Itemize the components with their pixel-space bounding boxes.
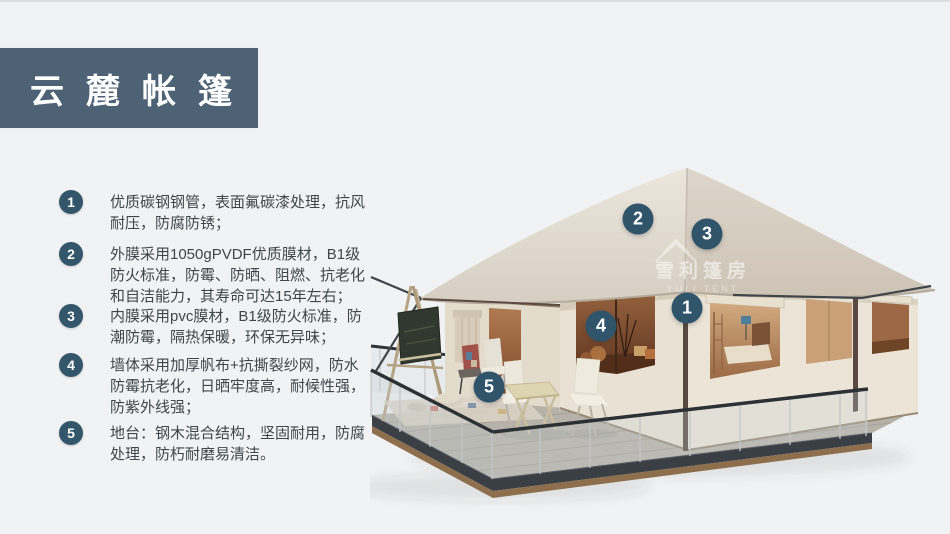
callout-marker-3: 3 — [692, 219, 723, 250]
side-window-far — [869, 294, 912, 354]
callout-marker-5: 5 — [474, 372, 505, 403]
slide: 云麓帐篷 1 优质碳钢钢管，表面氟碳漆处理，抗风耐压，防腐防锈； 2 外膜采用1… — [0, 0, 950, 534]
feature-number-badge: 4 — [59, 353, 83, 377]
title-banner: 云麓帐篷 — [0, 46, 260, 130]
feature-text: 内膜采用pvc膜材，B1级防火标准，防潮防霉，隔热保暖，环保无异味； — [110, 306, 368, 348]
feature-text: 外膜采用1050gPVDF优质膜材，B1级防火标准，防霉、防晒、阻燃、抗老化和自… — [110, 244, 368, 307]
callout-marker-1: 1 — [672, 293, 703, 324]
callout-marker-2: 2 — [623, 204, 654, 235]
tent-illustration: 雪利篷房 YULI TENT 1 2 3 4 5 — [370, 157, 950, 517]
feature-text: 优质碳钢钢管，表面氟碳漆处理，抗风耐压，防腐防锈； — [110, 192, 368, 234]
feature-number-badge: 1 — [59, 190, 83, 214]
tent-render — [370, 157, 950, 517]
feature-text: 墙体采用加厚帆布+抗撕裂纱网，防水防霉抗老化，日晒牢度高，耐候性强，防紫外线强； — [110, 355, 368, 418]
page-title: 云麓帐篷 — [0, 64, 254, 113]
feature-number-badge: 5 — [59, 421, 83, 445]
side-window-small — [803, 290, 855, 364]
feature-number-badge: 2 — [59, 242, 83, 266]
callout-marker-4: 4 — [586, 311, 617, 342]
side-window-bedroom — [706, 291, 784, 379]
feature-text: 地台：钢木混合结构，坚固耐用，防腐处理，防朽耐磨易清洁。 — [110, 423, 368, 465]
feature-number-badge: 3 — [59, 304, 83, 328]
